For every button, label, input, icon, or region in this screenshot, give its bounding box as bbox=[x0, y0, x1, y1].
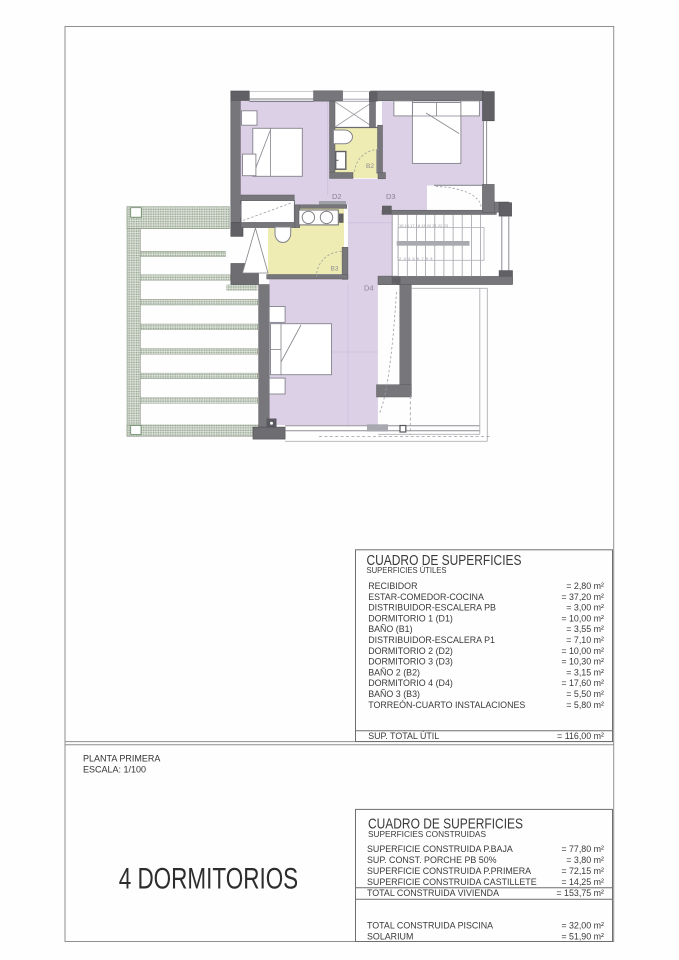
svg-text:= 14,25 m²: = 14,25 m² bbox=[561, 877, 604, 887]
svg-text:SUP. CONST. PORCHE PB 50%: SUP. CONST. PORCHE PB 50% bbox=[367, 855, 497, 865]
svg-text:DORMITORIO 1 (D1): DORMITORIO 1 (D1) bbox=[368, 613, 453, 623]
svg-text:SUPERFICIE CONSTRUIDA P.PRIMER: SUPERFICIE CONSTRUIDA P.PRIMERA bbox=[367, 866, 531, 876]
svg-text:TOTAL CONSTRUIDA PISCINA: TOTAL CONSTRUIDA PISCINA bbox=[367, 921, 493, 931]
svg-text:= 10,00 m²: = 10,00 m² bbox=[561, 613, 604, 623]
svg-text:= 10,30 m²: = 10,30 m² bbox=[561, 657, 604, 667]
svg-text:SUPERFICIE CONSTRUIDA CASTILLE: SUPERFICIE CONSTRUIDA CASTILLETE bbox=[367, 877, 537, 887]
svg-text:SUPERFICIE CONSTRUIDA P.BAJA: SUPERFICIE CONSTRUIDA P.BAJA bbox=[367, 844, 513, 854]
svg-text:BAÑO 3 (B3): BAÑO 3 (B3) bbox=[368, 689, 420, 699]
svg-text:D3: D3 bbox=[386, 192, 396, 201]
svg-text:= 72,15 m²: = 72,15 m² bbox=[561, 866, 604, 876]
svg-text:DORMITORIO 4 (D4): DORMITORIO 4 (D4) bbox=[368, 678, 453, 688]
svg-text:DORMITORIO 3 (D3): DORMITORIO 3 (D3) bbox=[368, 657, 453, 667]
svg-text:ESTAR-COMEDOR-COCINA: ESTAR-COMEDOR-COCINA bbox=[368, 592, 484, 602]
svg-text:B3: B3 bbox=[331, 266, 339, 273]
svg-text:TOTAL CONSTRUIDA VIVIENDA: TOTAL CONSTRUIDA VIVIENDA bbox=[367, 888, 499, 898]
svg-text:15 16 17 18 19 20 21 22 23: 15 16 17 18 19 20 21 22 23 bbox=[399, 223, 449, 228]
svg-text:D2: D2 bbox=[332, 192, 342, 201]
svg-text:= 7,10 m²: = 7,10 m² bbox=[566, 635, 604, 645]
svg-text:= 10,00 m²: = 10,00 m² bbox=[561, 646, 604, 656]
svg-text:D4: D4 bbox=[364, 284, 374, 293]
svg-text:= 3,55 m²: = 3,55 m² bbox=[566, 624, 604, 634]
svg-text:= 5,50 m²: = 5,50 m² bbox=[566, 689, 604, 699]
svg-text:TORREÓN-CUARTO INSTALACIONES: TORREÓN-CUARTO INSTALACIONES bbox=[368, 700, 525, 710]
svg-text:SOLARIUM: SOLARIUM bbox=[367, 932, 413, 942]
svg-text:DORMITORIO 2 (D2): DORMITORIO 2 (D2) bbox=[368, 646, 453, 656]
svg-text:B2: B2 bbox=[366, 163, 374, 170]
svg-text:= 3,00 m²: = 3,00 m² bbox=[566, 603, 604, 613]
svg-text:= 32,00 m²: = 32,00 m² bbox=[561, 921, 604, 931]
svg-text:= 51,90 m²: = 51,90 m² bbox=[561, 932, 604, 942]
svg-text:= 3,80 m²: = 3,80 m² bbox=[566, 855, 604, 865]
svg-text:PLANTA PRIMERA: PLANTA PRIMERA bbox=[83, 754, 160, 764]
svg-text:BAÑO 2 (B2): BAÑO 2 (B2) bbox=[368, 667, 420, 677]
svg-text:= 116,00 m²: = 116,00 m² bbox=[557, 731, 604, 741]
svg-text:= 3,15 m²: = 3,15 m² bbox=[566, 667, 604, 677]
svg-text:RECIBIDOR: RECIBIDOR bbox=[368, 581, 417, 591]
svg-text:= 153,75 m²: = 153,75 m² bbox=[556, 888, 604, 898]
svg-text:= 2,80 m²: = 2,80 m² bbox=[566, 581, 604, 591]
svg-text:= 77,80 m²: = 77,80 m² bbox=[561, 844, 604, 854]
svg-text:SUPERFICIES ÚTILES: SUPERFICIES ÚTILES bbox=[367, 566, 447, 575]
svg-text:= 17,60 m²: = 17,60 m² bbox=[561, 678, 604, 688]
svg-text:= 37,20 m²: = 37,20 m² bbox=[561, 592, 604, 602]
svg-text:ESCALA: 1/100: ESCALA: 1/100 bbox=[83, 765, 146, 775]
svg-text:DISTRIBUIDOR-ESCALERA P1: DISTRIBUIDOR-ESCALERA P1 bbox=[368, 635, 495, 645]
svg-text:DISTRIBUIDOR-ESCALERA PB: DISTRIBUIDOR-ESCALERA PB bbox=[368, 603, 496, 613]
svg-text:BAÑO (B1): BAÑO (B1) bbox=[368, 624, 412, 634]
svg-text:= 5,80 m²: = 5,80 m² bbox=[566, 700, 604, 710]
svg-text:SUPERFICIES CONSTRUIDAS: SUPERFICIES CONSTRUIDAS bbox=[368, 830, 486, 839]
svg-text:4 DORMITORIOS: 4 DORMITORIOS bbox=[119, 863, 299, 896]
svg-text:2 3 4 5 6 7 8 9: 2 3 4 5 6 7 8 9 bbox=[399, 256, 433, 261]
svg-text:SUP. TOTAL ÚTIL: SUP. TOTAL ÚTIL bbox=[368, 731, 439, 741]
